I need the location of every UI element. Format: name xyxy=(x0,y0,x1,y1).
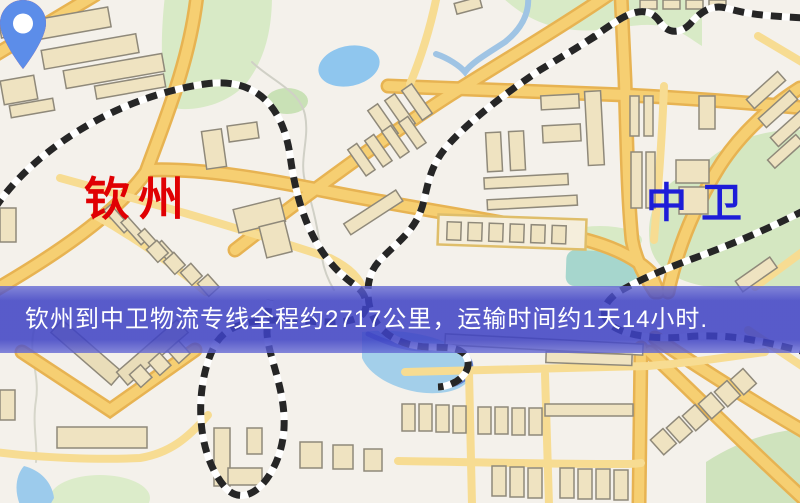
map-canvas[interactable]: 钦州 中卫 钦州到中卫物流专线全程约2717公里，运输时间约1天14小时. xyxy=(0,0,800,503)
route-info-banner: 钦州到中卫物流专线全程约2717公里，运输时间约1天14小时. xyxy=(0,286,800,353)
destination-pin[interactable] xyxy=(0,0,46,69)
map-graphic xyxy=(0,0,800,503)
map-pin-icon xyxy=(0,0,46,69)
route-info-text: 钦州到中卫物流专线全程约2717公里，运输时间约1天14小时. xyxy=(0,286,800,353)
pin-hole xyxy=(13,14,33,34)
destination-city-label: 中卫 xyxy=(646,183,756,224)
origin-city-label: 钦州 xyxy=(84,176,192,222)
